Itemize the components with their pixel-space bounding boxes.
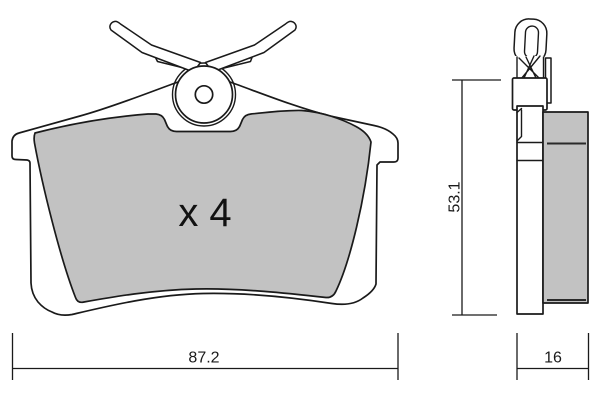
- quantity-label: x 4: [178, 191, 231, 235]
- drawing-canvas: x 4: [0, 0, 600, 400]
- friction-block: [543, 112, 588, 303]
- dimension-height: 53.1: [447, 80, 502, 315]
- dimension-thickness: 16: [517, 333, 589, 380]
- backing-plate: [517, 106, 543, 314]
- friction-block-side: [543, 112, 588, 303]
- front-view: x 4: [12, 21, 398, 315]
- retaining-spring-left-arm: [110, 21, 201, 72]
- spring-clip-loop: [513, 18, 547, 80]
- brake-pad-technical-drawing: x 4: [0, 0, 600, 400]
- side-view: [513, 18, 589, 314]
- retaining-spring-right-arm: [206, 21, 297, 72]
- dimension-thickness-label: 16: [544, 350, 562, 367]
- dimension-height-label: 53.1: [447, 181, 464, 212]
- center-hole: [195, 86, 212, 103]
- dimension-width: 87.2: [13, 333, 399, 380]
- dimension-width-label: 87.2: [188, 350, 219, 367]
